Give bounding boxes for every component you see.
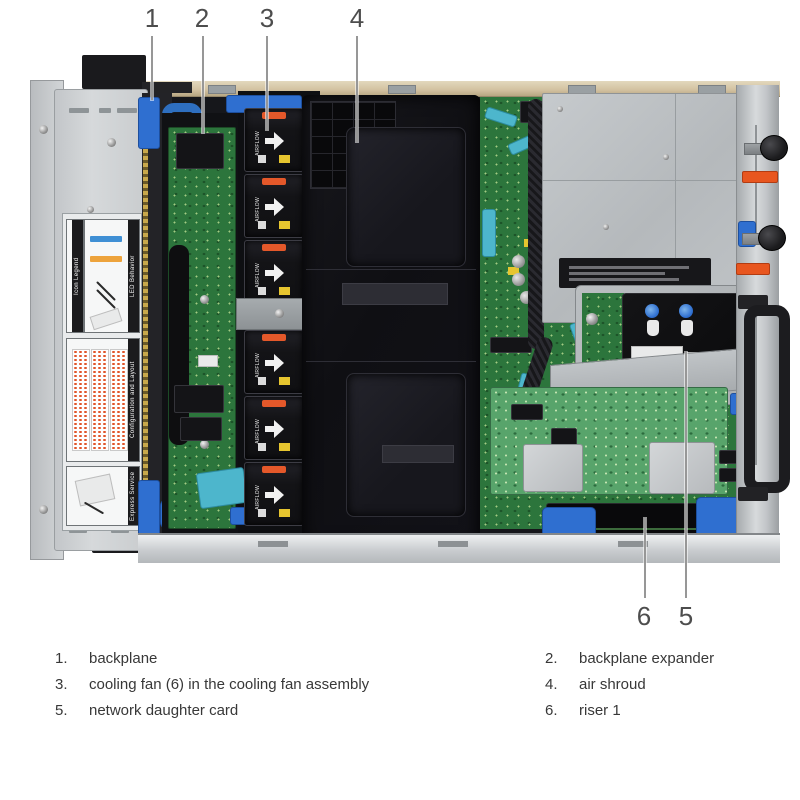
thumbscrew	[758, 225, 786, 251]
cover-seam	[543, 180, 739, 181]
screw-icon	[87, 206, 94, 213]
fan-airflow-label: AIRFLOW	[255, 263, 261, 288]
screw-icon	[275, 309, 284, 318]
chassis-tab	[388, 85, 416, 94]
panel-marking	[117, 108, 137, 113]
legend: 1. backplane 2. backplane expander 3. co…	[55, 650, 767, 719]
led-behavior-title: LED Behavior	[128, 220, 139, 332]
configuration-title: Configuration and Layout	[128, 339, 139, 461]
shroud-seam	[306, 269, 476, 270]
legend-number: 6.	[545, 702, 579, 719]
expander-connector	[174, 385, 224, 413]
callout-line-2	[202, 36, 204, 133]
fan-label-white	[258, 287, 266, 295]
screw-icon	[603, 224, 609, 230]
airflow-arrow-icon	[265, 360, 274, 366]
drive-map-grid	[91, 349, 109, 451]
fan-latch-orange	[262, 466, 286, 473]
legend-number: 1.	[55, 650, 89, 667]
chassis-tab	[438, 541, 468, 547]
touchpoint-icon	[645, 304, 659, 318]
fan-airflow-label: AIRFLOW	[255, 419, 261, 444]
backplane-release-latch	[138, 480, 160, 537]
fan-label-yellow	[279, 443, 290, 451]
airflow-arrow-icon	[265, 492, 274, 498]
legend-label: air shroud	[579, 676, 646, 693]
screw-icon	[586, 313, 598, 325]
legend-item-4: 4. air shroud	[545, 676, 767, 693]
fan-airflow-label: AIRFLOW	[255, 197, 261, 222]
cooling-fan-module: AIRFLOW	[244, 108, 304, 172]
fan-airflow-label: AIRFLOW	[255, 353, 261, 378]
fan-label-white	[258, 509, 266, 517]
fan-label-white	[258, 443, 266, 451]
riser-handle	[744, 305, 790, 493]
screw-icon	[107, 138, 116, 147]
hand-icon	[681, 320, 693, 336]
screw-icon	[39, 505, 48, 514]
callout-line-3	[266, 36, 268, 130]
cooling-fan-module: AIRFLOW	[244, 330, 304, 394]
sticker-tag-diagram	[90, 308, 123, 331]
sata-cable	[482, 209, 496, 257]
airflow-arrow-icon	[265, 270, 274, 276]
callout-number-1: 1	[142, 4, 162, 32]
backplane-release-latch	[138, 97, 160, 149]
drive-map-grid	[72, 349, 90, 451]
fan-label-white	[258, 377, 266, 385]
touchpoint-icon	[679, 304, 693, 318]
sata-cable	[484, 106, 518, 127]
label-text-line	[569, 278, 679, 281]
service-information-stickers: Icon Legend LED Behavior Configuration a…	[62, 213, 142, 531]
cable-connector	[490, 337, 532, 353]
expander-connector	[180, 417, 222, 441]
legend-number: 5.	[55, 702, 89, 719]
handle-mount	[738, 487, 768, 501]
drive-map-grid	[110, 349, 128, 451]
board-sticker	[198, 355, 218, 367]
capacitor-icon	[512, 273, 525, 286]
callout-line-1	[151, 36, 153, 100]
legend-item-5: 5. network daughter card	[55, 702, 545, 719]
screw-icon	[200, 440, 209, 449]
airflow-arrow-icon	[274, 420, 284, 438]
legend-number: 2.	[545, 650, 579, 667]
callout-line-4	[356, 36, 358, 142]
fan-label-yellow	[279, 287, 290, 295]
fan-latch-orange	[262, 400, 286, 407]
expander-edge-connector	[169, 245, 189, 445]
fan-label-yellow	[279, 377, 290, 385]
airflow-arrow-icon	[265, 204, 274, 210]
airflow-arrow-icon	[274, 132, 284, 150]
led-diagram-blue-bar	[90, 236, 122, 242]
shroud-label	[382, 445, 454, 463]
heatsink-plate	[649, 442, 715, 494]
fan-label-yellow	[279, 155, 290, 163]
cooling-fan-module: AIRFLOW	[244, 240, 304, 304]
capacitor-icon	[512, 255, 525, 268]
label-text-line	[569, 272, 665, 275]
label-text-line	[569, 266, 689, 269]
hand-icon	[647, 320, 659, 336]
airflow-arrow-icon	[265, 138, 274, 144]
front-corner-plastic	[142, 82, 192, 93]
callout-number-6: 6	[634, 602, 654, 630]
legend-number: 3.	[55, 676, 89, 693]
callout-line-5	[685, 352, 687, 598]
airflow-arrow-icon	[274, 354, 284, 372]
legend-label: backplane expander	[579, 650, 714, 667]
cooling-fan-module: AIRFLOW	[244, 174, 304, 238]
ribbon-cable	[196, 467, 249, 509]
callout-number-2: 2	[192, 4, 212, 32]
screw-icon	[663, 154, 669, 160]
orange-release-tab	[736, 263, 770, 275]
cooling-fan-module: AIRFLOW	[244, 462, 304, 526]
service-tag-sticker: Express Service Tag	[66, 466, 140, 526]
front-corner-plastic	[82, 55, 146, 89]
sticker-arrow-icon	[84, 502, 104, 515]
fan-latch-orange	[262, 178, 286, 185]
fan-latch-orange	[262, 334, 286, 341]
legend-label: cooling fan (6) in the cooling fan assem…	[89, 676, 369, 693]
chassis-bottom-wall	[138, 533, 780, 563]
sticker-tag-diagram	[75, 474, 116, 507]
heatsink-plate	[523, 444, 583, 492]
fan-label-yellow	[279, 221, 290, 229]
configuration-sticker: Configuration and Layout	[66, 338, 140, 462]
shroud-cpu-bump	[346, 127, 466, 267]
figure-canvas: Icon Legend LED Behavior Configuration a…	[0, 0, 800, 800]
legend-item-1: 1. backplane	[55, 650, 545, 667]
backplane-connector-edge	[143, 100, 148, 528]
fan-label-white	[258, 221, 266, 229]
legend-number: 4.	[545, 676, 579, 693]
screw-icon	[39, 125, 48, 134]
screw-icon	[557, 106, 563, 112]
cooling-fan-module: AIRFLOW	[244, 396, 304, 460]
thumbscrew	[760, 135, 788, 161]
chassis-tab	[258, 541, 288, 547]
screw-icon	[200, 295, 209, 304]
icon-legend-title: Icon Legend	[72, 220, 83, 332]
storage-controller-card	[490, 387, 728, 495]
callout-number-3: 3	[257, 4, 277, 32]
fan-label-yellow	[279, 509, 290, 517]
air-shroud	[302, 95, 480, 547]
shroud-seam	[306, 361, 476, 362]
legend-item-6: 6. riser 1	[545, 702, 767, 719]
psu-warning-label	[559, 258, 711, 288]
callout-number-5: 5	[676, 602, 696, 630]
led-behavior-sticker: LED Behavior	[84, 219, 140, 333]
orange-release-tab	[742, 171, 778, 183]
expander-connector	[176, 133, 224, 169]
shroud-label	[342, 283, 448, 305]
legend-label: backplane	[89, 650, 157, 667]
server-top-view-photo: Icon Legend LED Behavior Configuration a…	[30, 55, 778, 567]
panel-marking	[99, 108, 111, 113]
fan-label-white	[258, 155, 266, 163]
fan-latch-orange	[262, 244, 286, 251]
callout-line-6	[644, 518, 646, 598]
airflow-arrow-icon	[274, 486, 284, 504]
legend-item-3: 3. cooling fan (6) in the cooling fan as…	[55, 676, 545, 693]
fan-airflow-label: AIRFLOW	[255, 131, 261, 156]
panel-marking	[69, 108, 89, 113]
callout-number-4: 4	[347, 4, 367, 32]
card-component	[511, 404, 543, 420]
legend-label: network daughter card	[89, 702, 238, 719]
airflow-arrow-icon	[274, 198, 284, 216]
legend-item-2: 2. backplane expander	[545, 650, 767, 667]
led-diagram-orange-bar	[90, 256, 122, 262]
fan-airflow-label: AIRFLOW	[255, 485, 261, 510]
airflow-arrow-icon	[274, 264, 284, 282]
legend-label: riser 1	[579, 702, 621, 719]
chassis-tab	[208, 85, 236, 94]
icon-legend-sticker: Icon Legend	[66, 219, 84, 333]
airflow-arrow-icon	[265, 426, 274, 432]
